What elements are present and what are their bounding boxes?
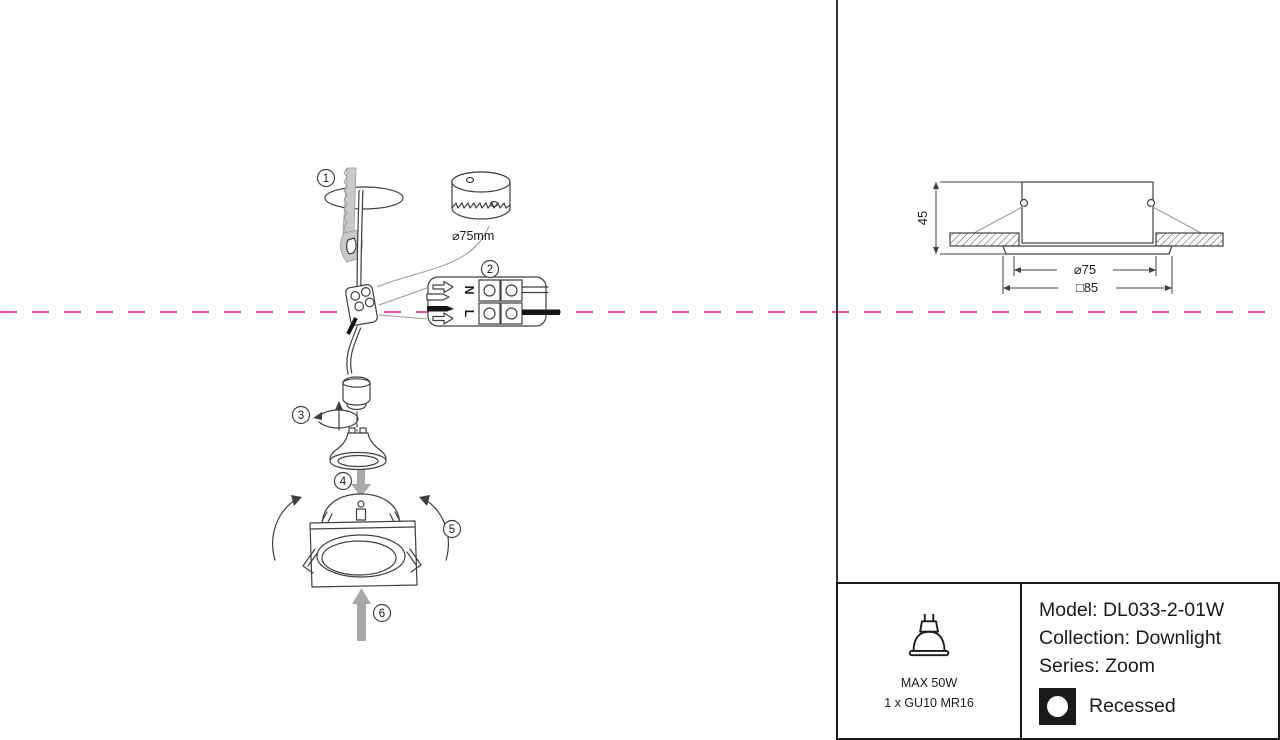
push-wire-connector bbox=[345, 284, 378, 326]
step4-6-mount-fixture: 4 5 6 bbox=[273, 470, 461, 641]
insert-down-arrow bbox=[351, 470, 371, 497]
ceiling-section-left bbox=[950, 233, 1019, 246]
model-label: Model: DL033-2-01W bbox=[1039, 596, 1278, 624]
spec-panel: MAX 50W 1 x GU10 MR16 Model: DL033-2-01W… bbox=[836, 582, 1280, 740]
hole-saw-bit bbox=[452, 172, 510, 219]
dimension-drawing: 45 ⌀75 □85 bbox=[880, 158, 1240, 308]
push-up-arrow bbox=[352, 588, 371, 641]
fixture-body-section bbox=[1022, 182, 1153, 243]
lamp-type-label: 1 x GU10 MR16 bbox=[838, 696, 1020, 710]
installation-steps-diagram: 1 ⌀75mm N bbox=[0, 0, 837, 740]
product-info-cell: Model: DL033-2-01W Collection: Downlight… bbox=[1022, 584, 1278, 738]
gu10-lamp bbox=[330, 428, 386, 470]
gu10-bulb-icon bbox=[906, 611, 953, 658]
mounting-label: Recessed bbox=[1089, 695, 1176, 718]
step1-number: 1 bbox=[323, 173, 329, 185]
fold-spring-arrow-left bbox=[273, 499, 297, 560]
step2-number: 2 bbox=[487, 264, 493, 276]
recessed-icon bbox=[1039, 688, 1076, 725]
series-label: Series: Zoom bbox=[1039, 652, 1278, 680]
step3-number: 3 bbox=[298, 410, 304, 422]
step4-number: 4 bbox=[340, 476, 347, 488]
max-power-label: MAX 50W bbox=[838, 676, 1020, 690]
step3-insert-lamp: 3 bbox=[293, 377, 387, 470]
lamp-spec-cell: MAX 50W 1 x GU10 MR16 bbox=[838, 584, 1022, 738]
datasheet-page: 1 ⌀75mm N bbox=[0, 0, 1280, 740]
collection-label: Collection: Downlight bbox=[1039, 624, 1278, 652]
terminal-n-label: N bbox=[462, 285, 476, 294]
mounting-row: Recessed bbox=[1039, 688, 1278, 725]
trim-flange bbox=[1003, 246, 1172, 254]
step6-number: 6 bbox=[379, 608, 385, 620]
step2-connect-wires: N L 2 bbox=[345, 261, 560, 375]
rotate-symbol bbox=[313, 401, 358, 430]
hole-size-label: ⌀75mm bbox=[452, 229, 494, 243]
terminal-block: N L bbox=[427, 277, 560, 326]
cutout-dimension-label: ⌀75 bbox=[1074, 262, 1096, 277]
ceiling-section-right bbox=[1156, 233, 1223, 246]
step5-number: 5 bbox=[449, 524, 455, 536]
terminal-l-label: L bbox=[462, 310, 476, 318]
square-dimension-label: □85 bbox=[1076, 280, 1098, 295]
height-dimension-label: 45 bbox=[915, 211, 930, 225]
recessed-circle bbox=[1047, 696, 1068, 717]
